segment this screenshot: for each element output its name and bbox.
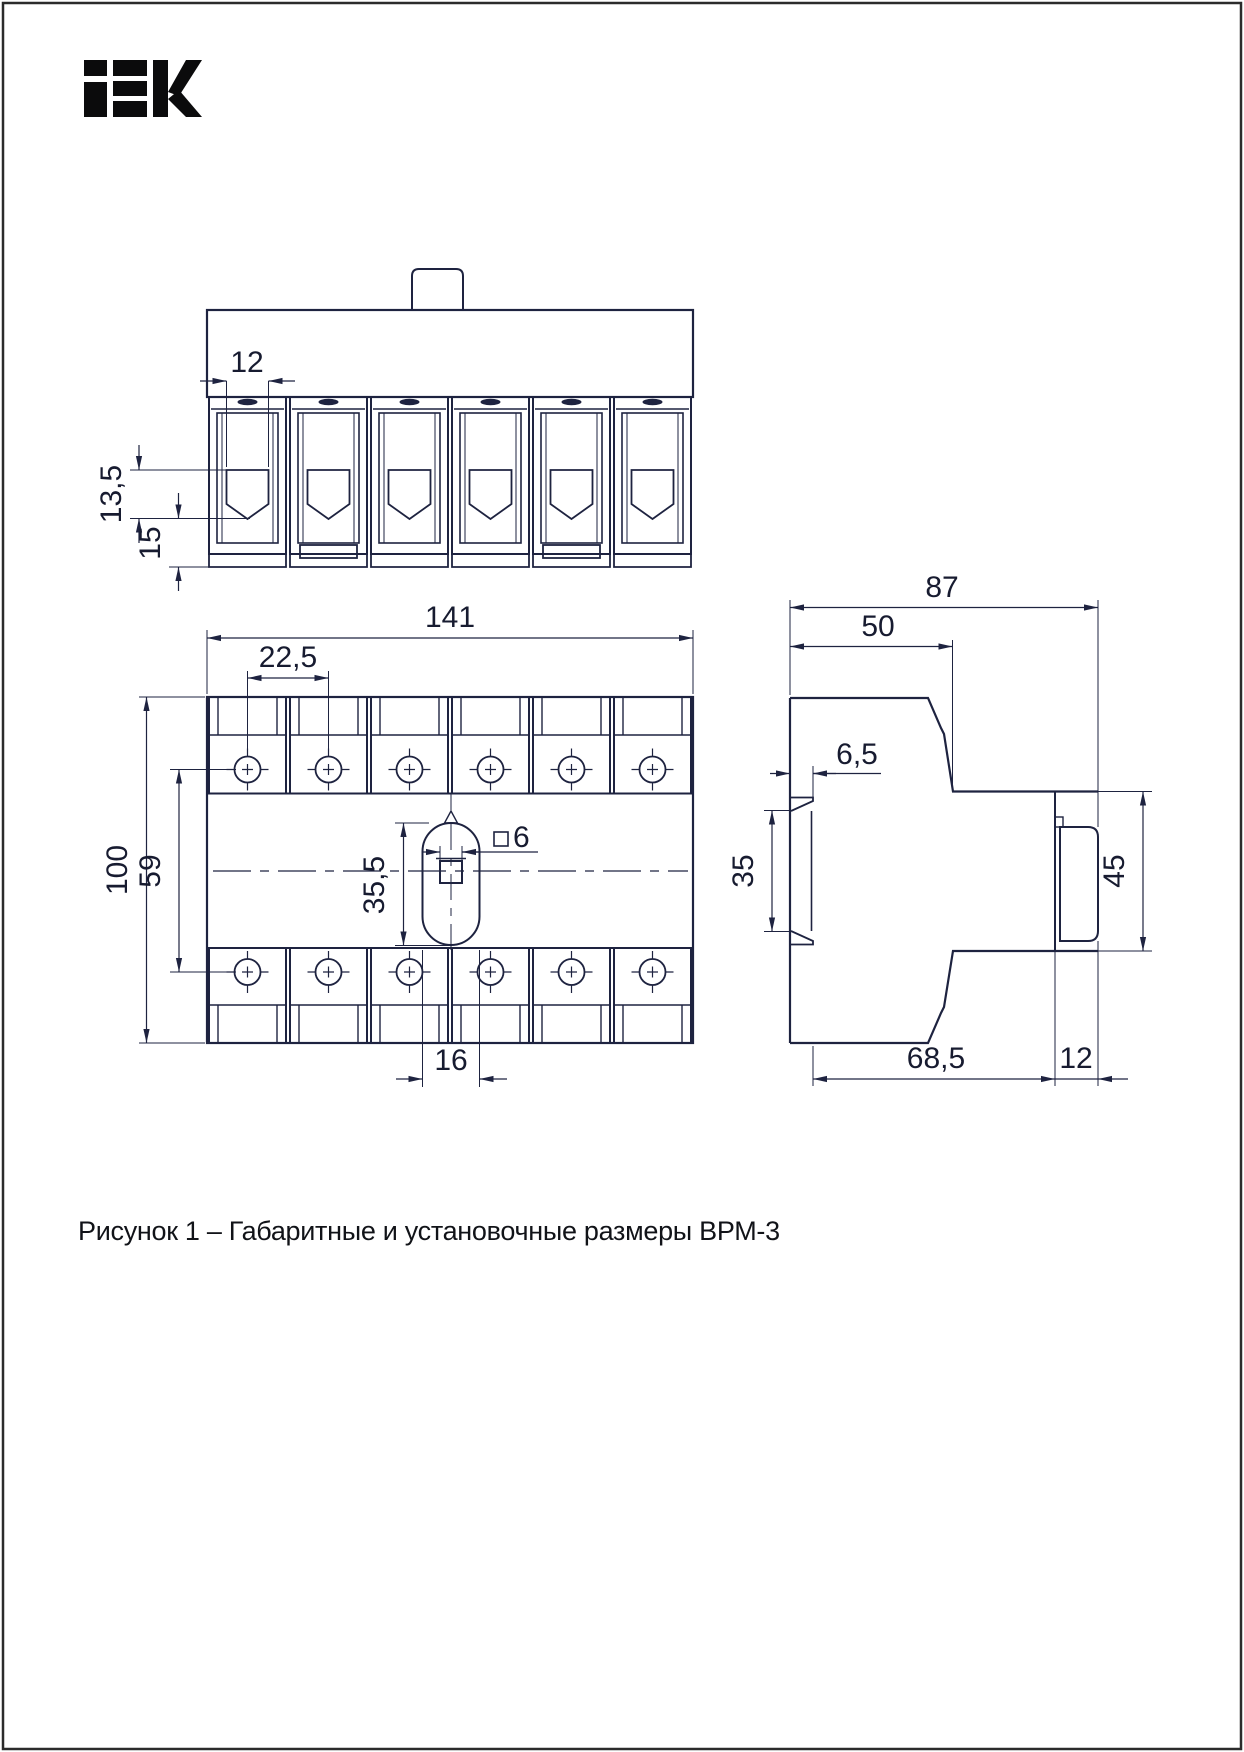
dim-side-rail-height: 35 <box>727 811 793 932</box>
din-rail-hook-top <box>790 798 813 812</box>
dim-side-lower-depth: 68,5 <box>813 951 1055 1086</box>
dim-side-block-depth: 12 <box>1055 941 1128 1086</box>
dim-label-side-87: 87 <box>925 571 958 604</box>
pole-terminal <box>533 697 610 794</box>
figure-caption: Рисунок 1 – Габаритные и установочные ра… <box>78 1216 780 1246</box>
front-view-body <box>207 697 693 1043</box>
pole-terminal <box>614 697 691 794</box>
terminal-cell <box>371 397 448 567</box>
terminal-cell <box>614 397 691 567</box>
dim-top-terminal-height: 15 <box>134 493 210 591</box>
front-view: 141 22,5 100 59 35,5 <box>101 601 693 1087</box>
dim-label-side-45: 45 <box>1098 854 1131 887</box>
dim-front-aperture-height: 35,5 <box>358 823 452 946</box>
terminal-cell <box>290 397 367 567</box>
dim-label-side-50: 50 <box>861 610 894 643</box>
pole-terminal <box>290 948 367 1043</box>
din-rail-hook-bottom <box>790 931 813 945</box>
dim-side-rail-offset: 6,5 <box>770 738 881 798</box>
terminal-clamp-bar <box>300 545 357 558</box>
terminal-block-face <box>1060 827 1098 941</box>
dim-label-front-141: 141 <box>425 601 475 634</box>
iek-logo <box>84 60 202 117</box>
pole-terminal <box>533 948 610 1043</box>
square-symbol-icon <box>494 832 508 846</box>
pole-terminal <box>614 948 691 1043</box>
terminal-block-notch <box>1055 817 1063 827</box>
dim-label-top-15: 15 <box>134 526 167 559</box>
dim-top-opening-width: 12 <box>200 346 295 467</box>
terminal-cell <box>209 397 286 567</box>
top-view: 12 13,5 15 <box>95 269 693 591</box>
dim-front-pole-pitch: 22,5 <box>248 641 329 756</box>
dim-label-side-35: 35 <box>727 854 760 887</box>
pointer-triangle <box>445 811 458 823</box>
dim-label-top-12: 12 <box>230 346 263 379</box>
front-view-terminals <box>209 697 691 1043</box>
pole-terminal <box>371 697 448 794</box>
dim-label-front-100: 100 <box>101 845 134 895</box>
dim-side-block-height: 45 <box>1098 792 1152 952</box>
dim-label-side-6-5: 6,5 <box>836 738 878 771</box>
figure-drawing: 12 13,5 15 <box>0 0 1244 1752</box>
dim-label-top-13-5: 13,5 <box>95 465 128 523</box>
pole-terminal <box>452 948 529 1043</box>
handle-aperture <box>423 794 480 958</box>
dim-label-side-68-5: 68,5 <box>907 1042 965 1075</box>
top-view-body <box>207 269 693 397</box>
pole-terminal <box>452 697 529 794</box>
top-view-terminals <box>209 397 691 567</box>
terminal-cell <box>533 397 610 567</box>
manual-page: 12 13,5 15 <box>0 0 1244 1752</box>
dim-label-side-12: 12 <box>1059 1042 1092 1075</box>
pole-terminal <box>371 948 448 1043</box>
side-view: 87 50 6,5 35 45 <box>727 571 1152 1086</box>
top-view-handle-tab <box>412 269 463 310</box>
terminal-cell <box>452 397 529 567</box>
terminal-clamp-bar <box>543 545 600 558</box>
dim-label-front-6: 6 <box>513 821 530 854</box>
dim-label-front-35-5: 35,5 <box>358 856 391 914</box>
dim-label-front-16: 16 <box>434 1044 467 1077</box>
dim-label-front-59: 59 <box>134 854 167 887</box>
pole-terminal <box>209 948 286 1043</box>
dim-label-front-22-5: 22,5 <box>259 641 317 674</box>
